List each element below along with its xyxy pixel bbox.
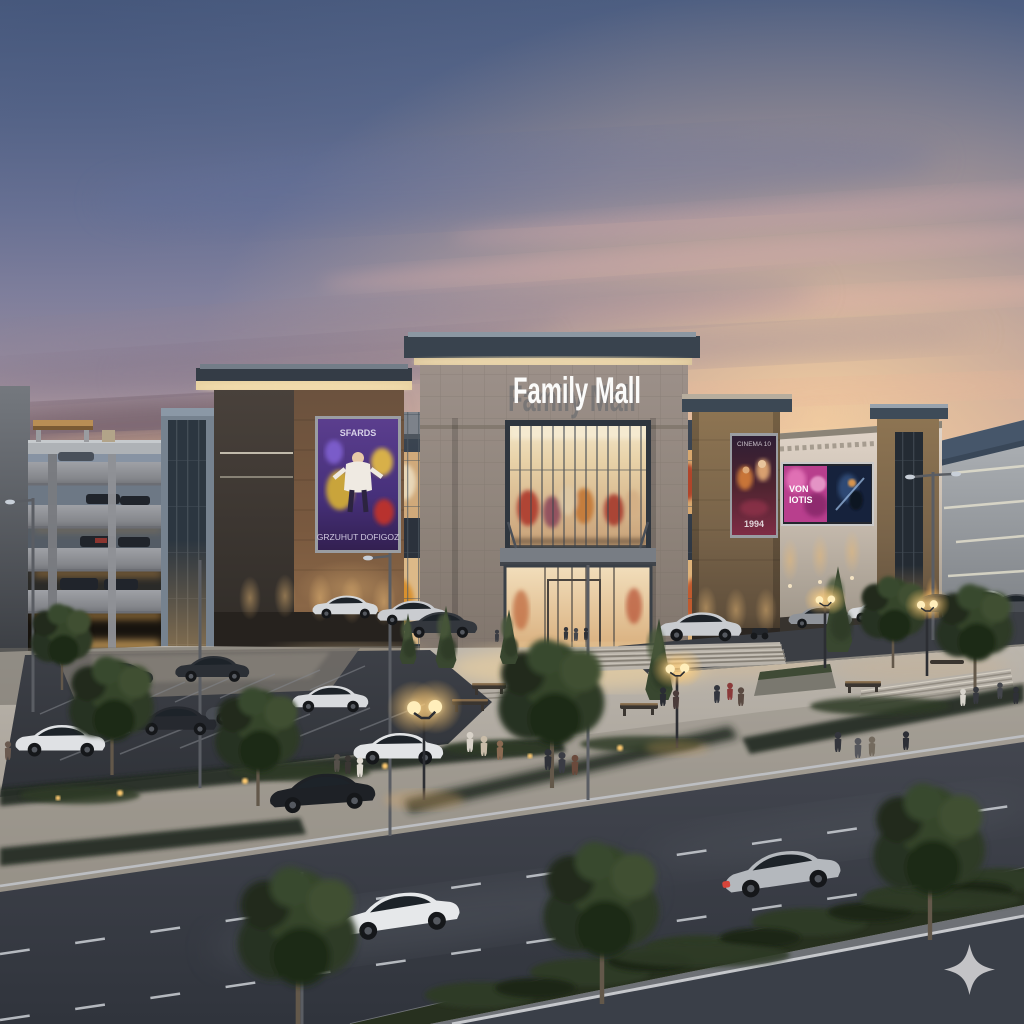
svg-text:1994: 1994 xyxy=(744,519,764,529)
svg-text:SFARDS: SFARDS xyxy=(340,428,377,438)
svg-text:VON: VON xyxy=(789,484,809,494)
svg-text:GRZUHUT DOFIGOZ: GRZUHUT DOFIGOZ xyxy=(317,532,399,542)
svg-text:CINEMA 10: CINEMA 10 xyxy=(737,441,771,448)
svg-text:IOTIS: IOTIS xyxy=(789,495,813,505)
svg-text:Family Mall: Family Mall xyxy=(513,369,641,411)
